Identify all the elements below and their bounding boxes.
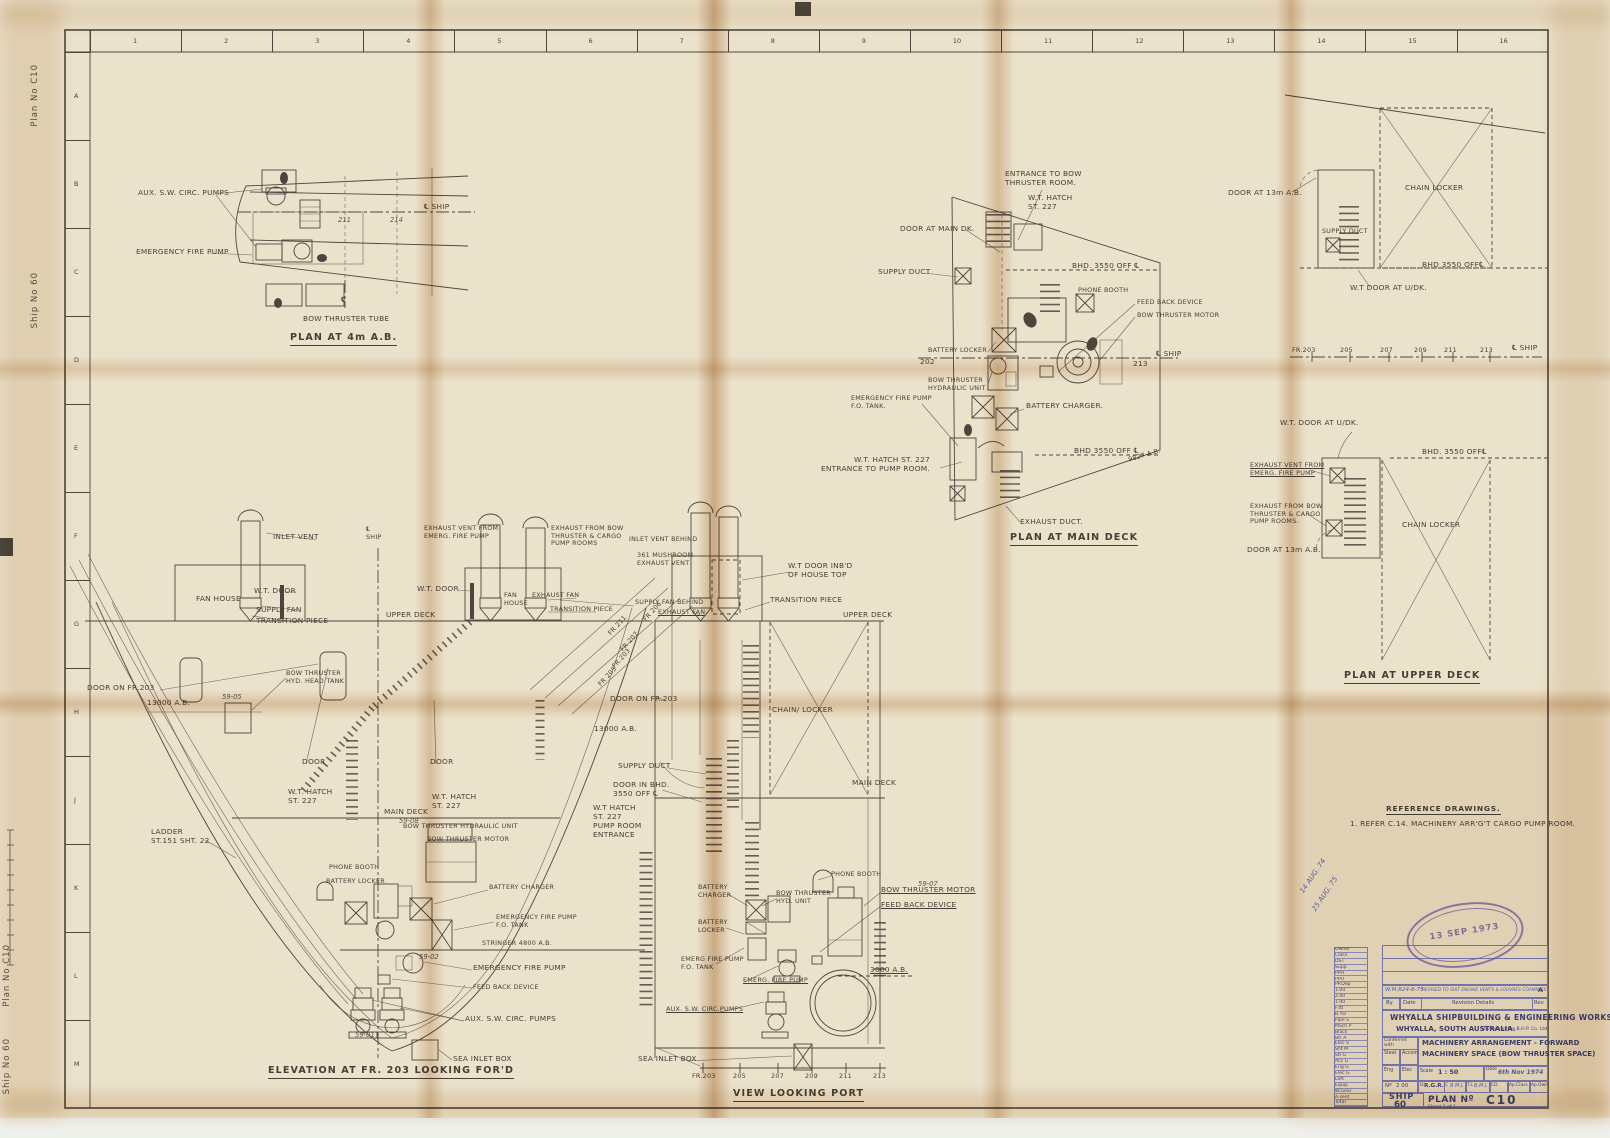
scale-label: Scale [1420, 1069, 1433, 1074]
drawing-number-label: Nº [1385, 1083, 1392, 1089]
frame-scale-tick-207: 207 [1380, 347, 1393, 355]
el-stringer-label: STRINGER 4800 A.B. [482, 940, 552, 948]
vp-ab3000-label: 3000 A.B. [870, 966, 908, 975]
p4-tube-label: BOW THRUSTER TUBE [303, 315, 389, 324]
grid-col-2: 2 [224, 37, 228, 45]
plan-number: C10 [1486, 1093, 1518, 1107]
approval-c-label: C [1445, 1083, 1448, 1088]
c2-title-label: PLAN AT UPPER DECK [1344, 670, 1480, 684]
conferred-elec: Elec [1402, 1068, 1412, 1073]
rev-col-date: Date [1403, 1000, 1416, 1006]
p4-emerg-label: EMERGENCY FIRE PUMP [136, 248, 229, 257]
c2-bhd-label: BHD. 3550 OFF℄ [1422, 448, 1487, 457]
scale-value: 1 : 50 [1438, 1068, 1458, 1076]
vp-hatch_pump-label: W.T HATCH ST. 227 PUMP ROOM ENTRANCE [593, 804, 641, 840]
approval-d: R.G.R. [1424, 1083, 1444, 1089]
grid-row-C: C [74, 268, 79, 276]
el-n5901-label: 59-01 [355, 1031, 375, 1039]
vp-phone2-label: PHONE BOOTH [831, 871, 881, 879]
grid-col-14: 14 [1317, 37, 1325, 45]
grid-col-1: 1 [133, 37, 137, 45]
el-cl_ship-label: ℄ SHIP [366, 526, 382, 541]
el-sea-label: SEA INLET BOX [453, 1055, 512, 1064]
el-sfan-label: SUPPLY FAN [256, 606, 302, 615]
ship-number: 60 [1394, 1100, 1406, 1110]
ref-item-label: 1. REFER C.14. MACHINERY ARR'G'T CARGO P… [1350, 820, 1575, 829]
vp-frame-tick-211: 211 [839, 1073, 852, 1081]
vp-frame-tick-209: 209 [805, 1073, 818, 1081]
approval-d-label: D [1420, 1083, 1424, 1088]
approval-tl-label: T.L [1467, 1083, 1473, 1088]
company-name: WHYALLA SHIPBUILDING & ENGINEERING WORKS [1390, 1013, 1610, 1022]
approval-apown: Ap.Own [1531, 1083, 1548, 1088]
vp-charger2-label: BATTERY CHARGER [698, 884, 731, 899]
edge-text-3: Ship No 60 [2, 1038, 12, 1094]
revision-by: W.M.B [1385, 987, 1402, 993]
revision-letter: A [1538, 987, 1543, 994]
grid-row-E: E [74, 444, 78, 452]
grid-row-K: K [74, 884, 78, 892]
el-hyd_unit-label: BOW THRUSTER HYDRAULIC UNIT [403, 823, 518, 831]
el-inlet-label: INLET VENT [273, 533, 319, 542]
rev-col-details: Revision Details [1452, 1000, 1494, 1006]
c1-wtdoor-label: W.T DOOR AT U/DK. [1350, 284, 1427, 293]
grid-col-10: 10 [953, 37, 961, 45]
vp-supply_duct-label: SUPPLY DUCT [618, 762, 671, 771]
el-door1-label: DOOR [302, 758, 325, 767]
vp-hyd2-label: BOW THRUSTER HYD. UNIT [776, 890, 831, 905]
el-wt1-label: W.T. DOOR [254, 587, 296, 596]
edge-text-2: Plan No C10 [2, 944, 12, 1007]
conferred-steel: Steel [1384, 1051, 1396, 1056]
pm-f213-label: 213 [1133, 360, 1148, 369]
el-trans2-label: TRANSITION PIECE [550, 606, 613, 614]
el-mushroom-label: 361 MUSHROOM EXHAUST VENT [637, 552, 693, 567]
drawing-title-1: MACHINERY ARRANGEMENT - FORWARD [1422, 1039, 1579, 1047]
p4-f214-label: 214 [390, 216, 403, 224]
el-trans3-label: TRANSITION PIECE [770, 596, 842, 605]
el-efp-label: EMERGENCY FIRE PUMP [473, 964, 566, 973]
vp-mdeck2-label: MAIN DECK [852, 779, 896, 788]
company-division: Division of the B.H.P. Co. Ltd. [1482, 1027, 1549, 1032]
grid-row-F: F [74, 532, 78, 540]
conferred-accom: Accom [1402, 1051, 1418, 1056]
el-motor-label: BOW THRUSTER MOTOR [427, 836, 509, 844]
vp-frame-tick-205: 205 [733, 1073, 746, 1081]
sheet-number: Sheet 1 of 1 [1428, 1105, 1456, 1110]
grid-col-8: 8 [771, 37, 775, 45]
vp-locker2-label: BATTERY LOCKER [698, 919, 728, 934]
grid-row-D: D [74, 356, 79, 364]
pm-bhd_top-label: BHD. 3550 OFF ℄ [1072, 262, 1139, 271]
grid-row-J: J [74, 796, 76, 804]
grid-col-16: 16 [1500, 37, 1508, 45]
frame-scale-ship-label: ℄ SHIP [1512, 344, 1537, 353]
grid-col-9: 9 [862, 37, 866, 45]
date-label: Date [1486, 1067, 1497, 1072]
el-aux-label: AUX. S.W. CIRC. PUMPS [465, 1015, 556, 1024]
c2-wtdoor-label: W.T. DOOR AT U/DK. [1280, 419, 1359, 428]
grid-row-G: G [74, 620, 79, 628]
vp-aux2-label: AUX. S.W. CIRC.PUMPS [666, 1006, 743, 1014]
approval-c: B.M.L [1450, 1083, 1464, 1089]
tb-checklist-total: Total [1334, 1100, 1368, 1106]
vp-ef_tank2-label: EMERG FIRE PUMP F.O. TANK [681, 956, 744, 971]
pm-f202-label: 202 [920, 358, 935, 367]
el-exfan2-label: EXHAUST FAN [658, 609, 705, 617]
p4-title-label: PLAN AT 4m A.B. [290, 332, 397, 346]
approval-cd: CD [1491, 1083, 1497, 1088]
grid-row-H: H [74, 708, 79, 716]
pm-hatch227-label: W.T. HATCH ST. 227 [1028, 194, 1072, 212]
pm-ef_tank-label: EMERGENCY FIRE PUMP F.O. TANK. [851, 395, 932, 410]
c2-ex_from-label: EXHAUST FROM BOW THRUSTER & CARGO PUMP R… [1250, 503, 1323, 526]
el-inlet_behind-label: INLET VENT BEHIND [629, 536, 697, 544]
frame-scale-tick-213: 213 [1480, 347, 1493, 355]
el-mdeck1-label: MAIN DECK [384, 808, 428, 817]
ref-heading-label: REFERENCE DRAWINGS. [1386, 805, 1501, 815]
el-ladder-label: LADDER ST.151 SHT. 22 [151, 828, 210, 846]
pm-cl_ship-label: ℄ SHIP [1156, 350, 1181, 359]
pm-exhaust-label: EXHAUST DUCT. [1020, 518, 1083, 527]
el-ab13000a-label: 13000 A.B. [147, 699, 190, 708]
approval-apclass: Ap.Class [1509, 1083, 1528, 1088]
drawing-sheet: OwnerClassDSTSuppPPHPPOPP.Dep1.002.001.0… [0, 0, 1610, 1138]
pm-motor-label: BOW THRUSTER MOTOR [1137, 312, 1219, 320]
frame-scale-tick-FR.203: FR.203 [1292, 347, 1316, 355]
pm-hyd-label: BOW THRUSTER HYDRAULIC UNIT [928, 377, 986, 392]
el-door_fr203a-label: DOOR ON FR.203 [87, 684, 155, 693]
el-hatch1-label: W.T. HATCH ST. 227 [288, 788, 332, 806]
c1-chain-label: CHAIN LOCKER [1405, 184, 1463, 193]
vp-frame-tick-213: 213 [873, 1073, 886, 1081]
frame-scale-tick-209: 209 [1414, 347, 1427, 355]
el-wtdoor_inbd-label: W.T DOOR INB'D OF HOUSE TOP [788, 562, 852, 580]
el-exfan1-label: EXHAUST FAN [532, 592, 579, 600]
pm-feed-label: FEED BACK DEVICE [1137, 299, 1203, 307]
plan-number-label: PLAN Nº [1428, 1095, 1474, 1105]
vp-door_bhd-label: DOOR IN BHD. 3550 OFF ℄ [613, 781, 670, 799]
grid-row-L: L [74, 972, 78, 980]
frame-scale-tick-211: 211 [1444, 347, 1457, 355]
el-udeck1-label: UPPER DECK [386, 611, 435, 620]
pm-supply-label: SUPPLY DUCT [878, 268, 931, 277]
grid-col-3: 3 [315, 37, 319, 45]
el-n5902-label: 59-02 [419, 953, 439, 961]
vp-sea2-label: SEA INLET BOX [638, 1055, 697, 1064]
grid-col-15: 15 [1408, 37, 1416, 45]
c2-chain-label: CHAIN LOCKER [1402, 521, 1460, 530]
vp-efp2-label: EMERG. FIRE PUMP [743, 977, 808, 985]
el-hatch2-label: W.T. HATCH ST. 227 [432, 793, 476, 811]
el-udeck2-label: UPPER DECK [843, 611, 892, 620]
vp-ab13000-label: 13000 A.B. [594, 725, 637, 734]
pm-hatch_pump-label: W.T. HATCH ST. 227 ENTRANCE TO PUMP ROOM… [821, 456, 930, 474]
el-exv_emerg-label: EXHAUST VENT FROM EMERG. FIRE PUMP [424, 525, 498, 540]
conferred-with: Conferred with [1384, 1038, 1407, 1048]
vp-motor2-label: BOW THRUSTER MOTOR [881, 886, 976, 895]
el-feed-label: FEED BACK DEVICE [473, 984, 539, 992]
c1-door13-label: DOOR AT 13m A.B. [1228, 189, 1302, 198]
grid-col-4: 4 [406, 37, 410, 45]
el-wt2-label: W.T. DOOR [417, 585, 459, 594]
el-fan1-label: FAN HOUSE [196, 595, 241, 604]
revision-text: REVISED TO SUIT ENGINE VENTS & LOUVRES C… [1422, 988, 1546, 993]
c2-door13-label: DOOR AT 13m A.B. [1247, 546, 1321, 555]
el-ef_tank-label: EMERGENCY FIRE PUMP F.O. TANK [496, 914, 577, 929]
pm-door_main-label: DOOR AT MAIN DK. [900, 225, 975, 234]
vp-chain-label: CHAIN/ LOCKER [772, 706, 833, 715]
drawing-title-2: MACHINERY SPACE (BOW THRUSTER SPACE) [1422, 1050, 1595, 1058]
grid-col-5: 5 [497, 37, 501, 45]
drawing-number: 2 00 [1396, 1083, 1408, 1089]
el-phone1-label: PHONE BOOTH [329, 864, 379, 872]
approval-tl: B.M.L [1474, 1083, 1488, 1089]
rev-col-by: By [1386, 1000, 1393, 1006]
vp-title-label: VIEW LOOKING PORT [733, 1088, 864, 1102]
date-value: 6th Nov 1974 [1498, 1069, 1543, 1076]
edge-text-0: Plan No C10 [30, 64, 40, 127]
frame-scale-tick-205: 205 [1340, 347, 1353, 355]
pm-title-label: PLAN AT MAIN DECK [1010, 532, 1138, 546]
el-title-label: ELEVATION AT FR. 203 LOOKING FOR'D [268, 1065, 514, 1079]
grid-col-12: 12 [1135, 37, 1143, 45]
grid-col-13: 13 [1226, 37, 1234, 45]
grid-col-11: 11 [1044, 37, 1052, 45]
vp-feed2-label: FEED BACK DEVICE [881, 901, 956, 910]
rev-col-rev: Rev [1534, 1000, 1544, 1006]
el-sfan_behind-label: SUPPLY FAN BEHIND [635, 599, 703, 607]
pm-entrance-label: ENTRANCE TO BOW THRUSTER ROOM. [1005, 170, 1082, 188]
el-blocker1-label: BATTERY LOCKER [326, 878, 385, 886]
c1-supply-label: SUPPLY DUCT [1322, 228, 1368, 236]
c2-ex_vent-label: EXHAUST VENT FROM EMERG. FIRE PUMP [1250, 462, 1324, 477]
grid-row-M: M [74, 1060, 80, 1068]
grid-col-7: 7 [680, 37, 684, 45]
vp-frame-tick-207: 207 [771, 1073, 784, 1081]
el-exv_bow-label: EXHAUST FROM BOW THRUSTER & CARGO PUMP R… [551, 525, 624, 548]
pm-batt_locker-label: BATTERY LOCKER [928, 347, 987, 355]
el-n5905-label: 59-05 [222, 693, 242, 701]
grid-col-6: 6 [589, 37, 593, 45]
vp-door_fr203-label: DOOR ON FR.203 [610, 695, 678, 704]
pm-phone-label: PHONE BOOTH [1078, 287, 1128, 295]
el-charger1-label: BATTERY CHARGER [489, 884, 554, 892]
p4-cl_ship-label: ℄ SHIP [424, 203, 449, 212]
grid-row-B: B [74, 180, 78, 188]
pm-charger-label: BATTERY CHARGER. [1026, 402, 1103, 411]
el-door2-label: DOOR [430, 758, 453, 767]
conferred-eng: Eng [1384, 1068, 1393, 1073]
el-fan2-label: FAN HOUSE [504, 592, 528, 607]
el-bt_tank-label: BOW THRUSTER HYD. HEAD TANK [286, 670, 344, 685]
c1-bhd-label: BHD 3550 OFF℄ [1422, 261, 1484, 270]
p4-f211-label: 211 [338, 216, 351, 224]
revision-date: 24-8-75 [1402, 987, 1423, 993]
grid-row-A: A [74, 92, 78, 100]
p4-cl_mark-label: ℄ [341, 296, 346, 305]
edge-text-1: Ship No 60 [30, 272, 40, 328]
p4-aux-label: AUX. S.W. CIRC. PUMPS [138, 189, 229, 198]
vp-frame-tick-FR.203: FR.203 [692, 1073, 716, 1081]
el-trans1-label: TRANSITION PIECE [256, 617, 328, 626]
